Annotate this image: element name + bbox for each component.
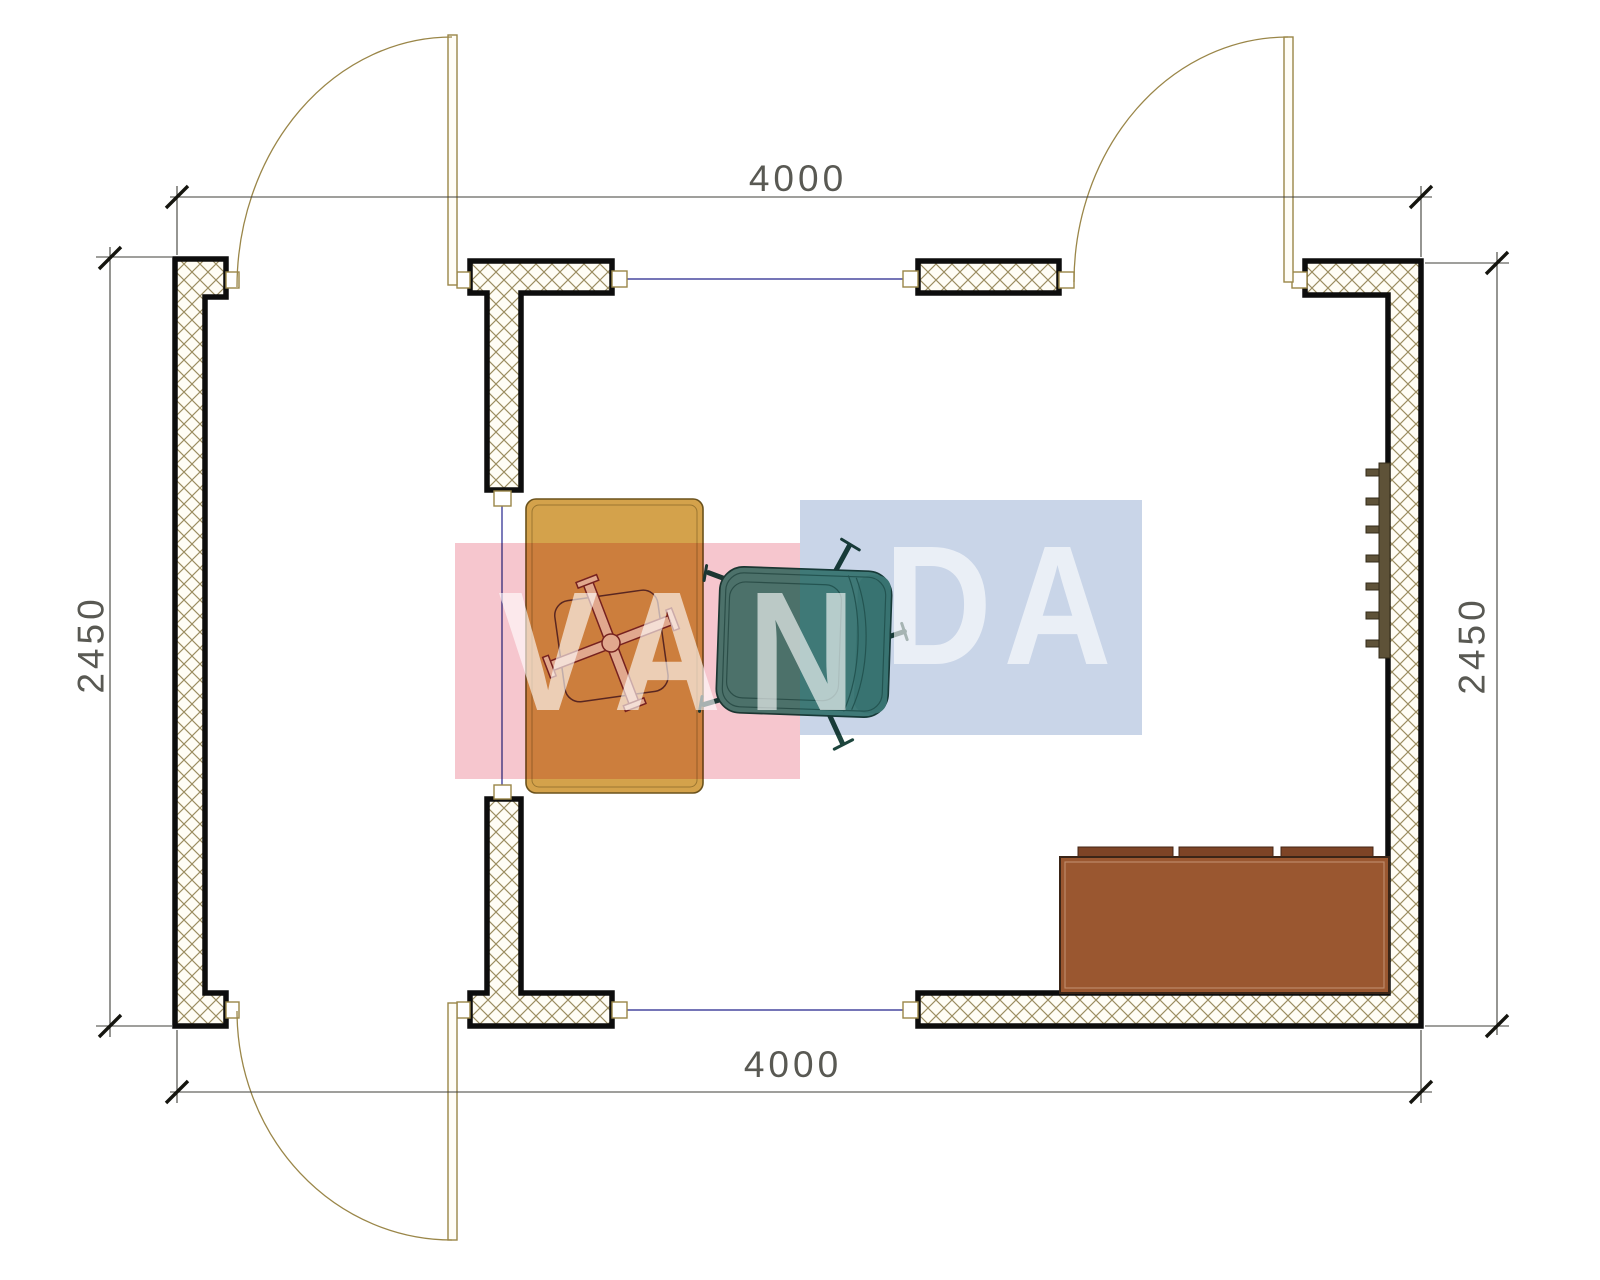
top-right-door-arc bbox=[1074, 37, 1288, 282]
left-wall bbox=[175, 259, 226, 1026]
dimension-label-bottom: 4000 bbox=[693, 1046, 893, 1083]
radiator bbox=[1366, 463, 1390, 658]
jamb bbox=[903, 271, 918, 287]
sofa bbox=[1060, 847, 1389, 993]
top-right-door-leaf bbox=[1284, 37, 1293, 282]
bottom-left-door-leaf bbox=[448, 1003, 457, 1240]
floor-plan-page: VAN DA 4000 4000 2450 2450 bbox=[0, 0, 1600, 1280]
jamb bbox=[903, 1002, 918, 1018]
dimension-label-left: 2450 bbox=[73, 545, 110, 745]
jamb bbox=[1292, 272, 1307, 288]
top-middle-wall bbox=[918, 261, 1059, 293]
column-cap bbox=[494, 491, 511, 506]
top-left-t-wall bbox=[470, 261, 612, 490]
jamb bbox=[612, 1002, 627, 1018]
dimension-label-top: 4000 bbox=[698, 160, 898, 197]
jamb bbox=[1059, 272, 1074, 288]
column-cap bbox=[494, 785, 511, 799]
dimension-label-right: 2450 bbox=[1454, 546, 1491, 746]
bottom-left-door-arc bbox=[237, 1011, 452, 1240]
bottom-left-t-wall bbox=[470, 799, 612, 1026]
top-left-door-leaf bbox=[448, 35, 457, 285]
watermark-text-right: DA bbox=[884, 521, 1123, 691]
jamb bbox=[457, 1002, 470, 1018]
jamb bbox=[612, 271, 627, 287]
watermark-text-left: VAN bbox=[498, 567, 882, 737]
jamb bbox=[457, 272, 470, 288]
top-left-door-arc bbox=[237, 37, 452, 287]
